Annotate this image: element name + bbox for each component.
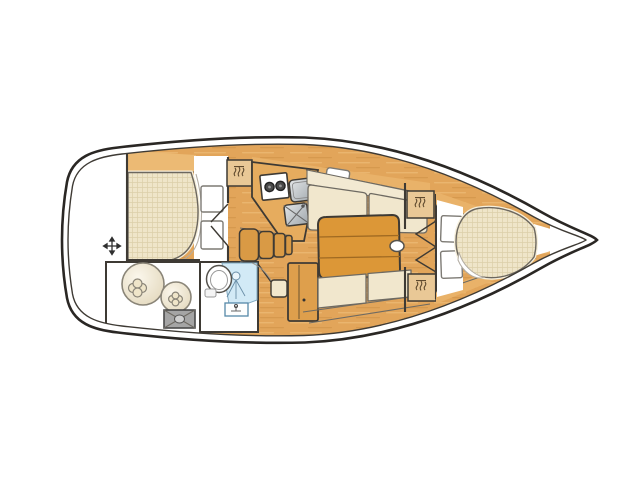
step — [286, 236, 293, 255]
nav-stool — [271, 280, 287, 297]
settee-cushion — [318, 274, 366, 308]
galley-double-sink — [284, 203, 309, 227]
mast-post — [390, 241, 404, 252]
step — [274, 234, 285, 258]
step — [240, 229, 259, 261]
saloon-table — [318, 215, 404, 279]
step — [259, 232, 274, 259]
locker-hatch — [201, 221, 223, 249]
washbasin — [225, 303, 248, 316]
aft-cabin-berth — [128, 173, 198, 261]
locker-hatch — [201, 186, 223, 212]
page — [0, 0, 640, 480]
hanging-locker-fwd-upper — [407, 191, 434, 218]
hanging-locker-fwd-lower — [408, 274, 436, 301]
stove — [260, 173, 289, 201]
engine-hatch — [164, 310, 195, 328]
aft-cabin — [127, 151, 228, 262]
boat-floor-plan — [0, 0, 640, 480]
hanging-locker-aft — [227, 160, 252, 186]
storage-lazarette — [106, 262, 200, 334]
